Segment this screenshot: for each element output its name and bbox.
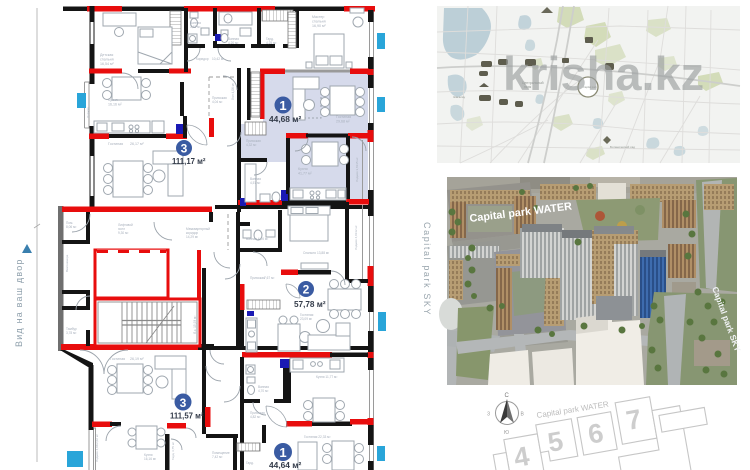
svg-text:44,64 м²: 44,64 м²	[269, 460, 301, 470]
svg-text:16,16 м²: 16,16 м²	[144, 457, 156, 461]
svg-text:44,68 м²: 44,68 м²	[269, 114, 301, 124]
svg-text:Мастер: Мастер	[312, 15, 324, 19]
svg-text:16,16 м²: 16,16 м²	[108, 103, 122, 107]
svg-text:Ванная 4,05 м²: Ванная 4,05 м²	[246, 237, 268, 241]
svg-text:Гостиная: Гостиная	[336, 115, 351, 119]
svg-text:Лоджия: Лоджия	[86, 107, 90, 118]
svg-text:Ю: Ю	[504, 430, 509, 436]
svg-text:111,17 м²: 111,17 м²	[172, 157, 206, 166]
svg-text:1: 1	[279, 445, 286, 460]
svg-text:Вид на ваш двор: Вид на ваш двор	[14, 258, 24, 347]
svg-text:16,54 м²: 16,54 м²	[100, 62, 114, 66]
svg-text:29,68 м²: 29,68 м²	[336, 120, 350, 124]
svg-text:2: 2	[303, 283, 310, 297]
svg-text:3,78 м²: 3,78 м²	[66, 331, 76, 335]
svg-text:9,30 м²: 9,30 м²	[118, 231, 128, 235]
svg-text:Лоджия 4,0132 м²: Лоджия 4,0132 м²	[354, 225, 358, 250]
svg-text:Лоджия 4,04/2,02 м²: Лоджия 4,04/2,02 м²	[95, 434, 99, 462]
svg-text:З: З	[487, 412, 490, 418]
svg-text:Л.к. 15,93 м²: Л.к. 15,93 м²	[193, 316, 197, 334]
svg-text:спальня: спальня	[312, 20, 326, 24]
svg-text:спальня: спальня	[100, 58, 114, 62]
svg-text:41,77 м²: 41,77 м²	[298, 172, 312, 176]
svg-text:Кухня 11,77 м²: Кухня 11,77 м²	[316, 375, 337, 379]
svg-text:13,88 м²: 13,88 м²	[317, 251, 329, 255]
svg-text:4,57 м²: 4,57 м²	[250, 181, 260, 185]
svg-text:26,19 м²: 26,19 м²	[130, 357, 144, 361]
svg-text:3: 3	[181, 142, 188, 156]
svg-text:Гард.: Гард.	[246, 461, 254, 465]
svg-text:krisha.kz: krisha.kz	[503, 47, 704, 100]
svg-text:4,04 м²: 4,04 м²	[212, 100, 222, 104]
svg-text:4,20 м²: 4,20 м²	[228, 41, 238, 45]
svg-text:Ботанический сад: Ботанический сад	[610, 145, 635, 149]
svg-text:57,78 м²: 57,78 м²	[294, 300, 326, 309]
svg-text:Гард. 3,75 м²: Гард. 3,75 м²	[171, 442, 175, 460]
svg-text:Вент.камера: Вент.камера	[65, 254, 69, 272]
svg-text:7,67 м²: 7,67 м²	[264, 276, 274, 280]
svg-text:Кухня: Кухня	[298, 167, 308, 171]
svg-text:10,42 м²: 10,42 м²	[212, 57, 224, 61]
svg-text:Жағалау: Жағалау	[453, 95, 466, 99]
svg-text:Спальня: Спальня	[303, 251, 316, 255]
svg-text:Лоджия 3,8135 м²: Лоджия 3,8135 м²	[355, 157, 359, 182]
svg-text:Гостиная: Гостиная	[108, 142, 123, 146]
svg-text:14,29 м²: 14,29 м²	[186, 235, 198, 239]
svg-text:23,09 м²: 23,09 м²	[300, 317, 312, 321]
svg-text:1: 1	[279, 98, 286, 113]
svg-text:Хол 4,06 м²: Хол 4,06 м²	[231, 83, 235, 100]
svg-text:Capital park SKY: Capital park SKY	[422, 222, 432, 316]
svg-text:4,25 м²: 4,25 м²	[266, 41, 276, 45]
svg-text:4,70 м²: 4,70 м²	[258, 389, 268, 393]
svg-text:Коридор: Коридор	[196, 57, 209, 61]
svg-text:3: 3	[180, 396, 187, 410]
svg-text:Детская: Детская	[100, 53, 113, 57]
svg-text:Кухня: Кухня	[108, 98, 118, 102]
svg-text:111,57 м²: 111,57 м²	[170, 412, 204, 421]
svg-text:4,32 м²: 4,32 м²	[246, 143, 256, 147]
svg-text:26,17 м²: 26,17 м²	[130, 142, 144, 146]
svg-text:Прихожая: Прихожая	[250, 276, 265, 280]
svg-text:8,06 м²: 8,06 м²	[66, 225, 76, 229]
svg-text:С: С	[505, 393, 510, 399]
svg-text:Гостиная: Гостиная	[110, 357, 125, 361]
svg-text:16,90 м²: 16,90 м²	[312, 24, 326, 28]
svg-text:Гостиная 22,33 м²: Гостиная 22,33 м²	[304, 435, 330, 439]
svg-text:7,42 м²: 7,42 м²	[212, 455, 222, 459]
svg-text:3,45 м²: 3,45 м²	[190, 25, 200, 29]
svg-text:4,82 м²: 4,82 м²	[250, 415, 260, 419]
